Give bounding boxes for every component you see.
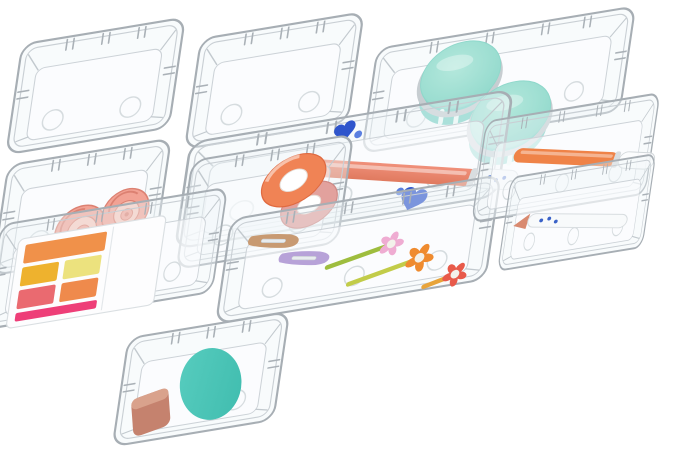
bin-sponge: [113, 312, 290, 447]
bin-empty-back-left: [6, 18, 185, 155]
snap-clip-lavender: [277, 251, 332, 265]
snap-clip-tan: [246, 234, 301, 248]
product-photo: [0, 0, 679, 471]
